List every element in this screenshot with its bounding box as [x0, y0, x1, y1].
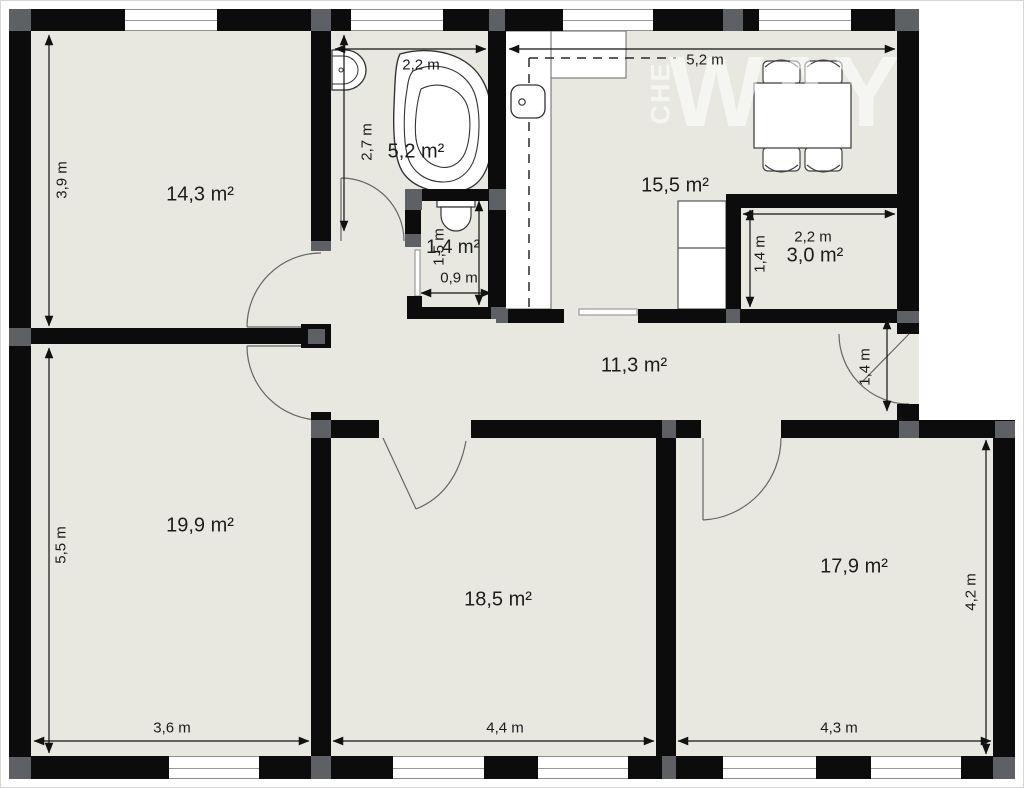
floor-plan: WAY CHE — [0, 0, 1024, 788]
pillar-top-1 — [311, 9, 331, 31]
dim-bathroom-width: 2,2 m — [402, 57, 440, 74]
dining-table-icon — [754, 60, 851, 172]
door-room-c — [383, 438, 466, 509]
dim-wc-height: 1,5 m — [431, 228, 448, 266]
pillar-right-step — [995, 421, 1015, 438]
toilet-icon — [437, 197, 475, 231]
wall-hall-south-a — [331, 420, 379, 438]
dim-storage-width: 2,2 m — [794, 229, 832, 246]
wall-exterior-bottom — [9, 756, 1015, 779]
pillar-wc-nw — [405, 189, 422, 210]
sliding-door-kitchen — [579, 309, 637, 315]
pillar-room-a-cap — [311, 241, 331, 251]
wall-exterior-right-upper2 — [897, 404, 919, 421]
dim-room-a-height: 3,9 m — [54, 161, 71, 199]
door-room-b — [247, 346, 321, 420]
refrigerator-icon — [678, 201, 726, 309]
wall-hall-south-d — [781, 420, 1015, 438]
pillar-right-mid — [897, 311, 919, 323]
pillar-room-cd-top — [662, 420, 676, 438]
room-label-bathroom: 5,2 m² — [388, 141, 445, 164]
window-bottom-3 — [538, 756, 628, 779]
pillar-corner-se — [993, 757, 1015, 779]
room-label-kitchen: 15,5 m² — [641, 175, 709, 198]
room-label-storage: 3,0 m² — [787, 245, 844, 268]
room-label-room-a: 14,3 m² — [166, 184, 234, 207]
sliding-door-wc — [415, 250, 420, 296]
pillar-bottom-1 — [311, 756, 331, 779]
wall-storage-south — [726, 309, 897, 323]
dim-kitchen-width: 5,2 m — [686, 52, 724, 69]
room-label-room-c: 18,5 m² — [464, 589, 532, 612]
kitchen-counter-icon — [505, 31, 676, 309]
pillar-storage-sw — [726, 309, 740, 323]
wall-storage-west — [726, 194, 741, 309]
wall-exterior-right-lower — [993, 421, 1015, 756]
pillar-hall-step — [899, 421, 919, 438]
window-bottom-1 — [169, 756, 259, 779]
wall-exterior-left — [9, 9, 31, 779]
kitchen-sink-icon — [511, 85, 545, 118]
door-bathroom — [341, 178, 404, 241]
door-balcony — [839, 334, 909, 404]
wall-kitchen-south-b — [638, 309, 726, 323]
window-top-2 — [351, 9, 443, 31]
wall-hall-south-b — [471, 420, 664, 438]
pillar-kitchen-sw — [496, 309, 508, 323]
pillar-corner-nw — [9, 9, 31, 31]
window-top-4 — [759, 9, 851, 31]
room-label-room-b: 19,9 m² — [166, 515, 234, 538]
dim-room-b-height: 5,5 m — [53, 526, 70, 564]
pillar-divider-end — [308, 329, 325, 344]
pillar-bottom-2 — [662, 756, 676, 779]
wall-exterior-right-upper — [897, 9, 919, 334]
dim-balcony-door-width: 1,4 m — [857, 348, 874, 386]
window-top-1 — [125, 9, 217, 31]
window-top-3 — [563, 9, 653, 31]
pillar-corner-sw — [9, 757, 31, 779]
wall-bath-east — [488, 31, 506, 309]
dim-bathroom-height: 2,7 m — [359, 123, 376, 161]
wall-room-c-east — [656, 438, 676, 756]
door-room-d — [703, 438, 781, 520]
pillar-corner-ne — [895, 9, 919, 31]
dim-wc-width: 0,9 m — [440, 270, 478, 287]
wall-room-b-east — [311, 438, 331, 756]
dim-room-c-width: 4,4 m — [486, 720, 524, 737]
washbasin-icon — [332, 50, 366, 90]
wall-room-a-east — [311, 31, 331, 241]
pillar-wc-ne — [489, 189, 506, 210]
window-bottom-4 — [723, 756, 816, 779]
wall-storage-north — [726, 194, 897, 208]
pillar-hall-west — [311, 420, 331, 438]
dim-storage-height: 1,4 m — [752, 235, 769, 273]
room-label-room-d: 17,9 m² — [820, 556, 888, 579]
door-room-a — [247, 253, 321, 327]
dim-room-d-width: 4,3 m — [820, 720, 858, 737]
pillar-top-3 — [723, 9, 743, 31]
dim-room-d-height: 4,2 m — [963, 573, 980, 611]
plan-symbols-layer — [1, 1, 1024, 788]
room-label-hallway: 11,3 m² — [601, 355, 667, 378]
dim-room-b-width: 3,6 m — [153, 720, 191, 737]
pillar-top-2 — [489, 9, 505, 31]
pillar-wc-w — [405, 234, 421, 247]
window-bottom-2 — [393, 756, 484, 779]
wall-room-a-south — [31, 328, 303, 344]
pillar-left-mid — [9, 328, 31, 346]
window-bottom-5 — [871, 756, 961, 779]
